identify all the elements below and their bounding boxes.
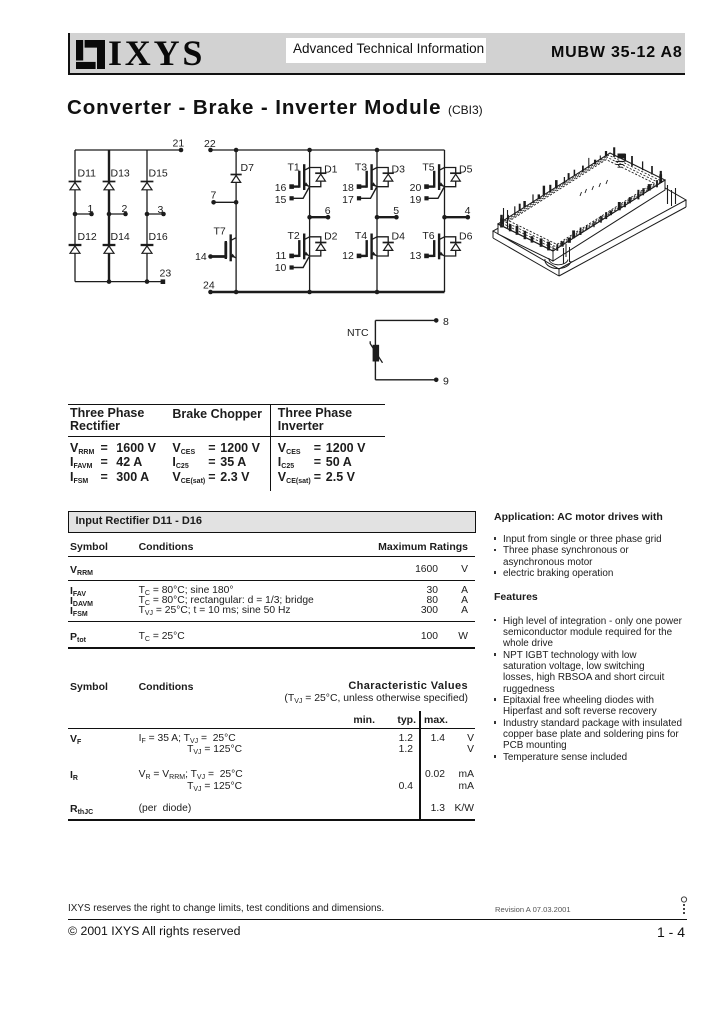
svg-text:7: 7 [211, 189, 217, 201]
svg-text:T2: T2 [288, 230, 300, 242]
svg-text:T1: T1 [288, 162, 300, 174]
svg-text:D1: D1 [324, 164, 338, 176]
svg-text:15: 15 [275, 194, 287, 206]
svg-text:T5: T5 [422, 162, 434, 174]
svg-text:22: 22 [204, 138, 216, 150]
svg-text:NTC: NTC [347, 327, 369, 339]
svg-text:2: 2 [122, 203, 128, 215]
svg-text:T7: T7 [214, 226, 226, 238]
svg-text:D7: D7 [241, 162, 255, 174]
svg-text:D14: D14 [111, 231, 130, 243]
svg-text:T3: T3 [355, 162, 367, 174]
svg-text:D12: D12 [78, 231, 97, 243]
svg-text:24: 24 [203, 280, 215, 292]
svg-text:T4: T4 [355, 230, 367, 242]
svg-text:10: 10 [275, 262, 287, 274]
svg-text:6: 6 [325, 205, 331, 217]
svg-text:3: 3 [158, 204, 164, 216]
svg-text:8: 8 [443, 316, 449, 328]
svg-text:D6: D6 [459, 231, 473, 243]
svg-text:D13: D13 [111, 168, 130, 180]
svg-text:D3: D3 [392, 164, 406, 176]
svg-text:D16: D16 [149, 231, 168, 243]
svg-text:23: 23 [160, 268, 172, 280]
svg-text:17: 17 [342, 194, 354, 206]
svg-text:5: 5 [393, 205, 399, 217]
svg-text:4: 4 [465, 205, 471, 217]
svg-text:D2: D2 [324, 231, 338, 243]
svg-text:1: 1 [88, 203, 94, 215]
svg-text:T6: T6 [422, 230, 434, 242]
svg-text:19: 19 [410, 194, 422, 206]
svg-text:20: 20 [410, 182, 422, 194]
svg-text:13: 13 [410, 250, 422, 262]
svg-text:9: 9 [443, 376, 449, 388]
svg-text:D11: D11 [78, 168, 97, 180]
svg-text:14: 14 [195, 251, 207, 263]
svg-text:21: 21 [173, 138, 185, 150]
svg-text:18: 18 [342, 182, 354, 194]
svg-text:D5: D5 [459, 164, 473, 176]
svg-text:11: 11 [275, 250, 286, 262]
svg-text:D15: D15 [149, 168, 168, 180]
svg-text:12: 12 [342, 250, 354, 262]
svg-text:16: 16 [275, 182, 287, 194]
svg-text:D4: D4 [392, 231, 406, 243]
